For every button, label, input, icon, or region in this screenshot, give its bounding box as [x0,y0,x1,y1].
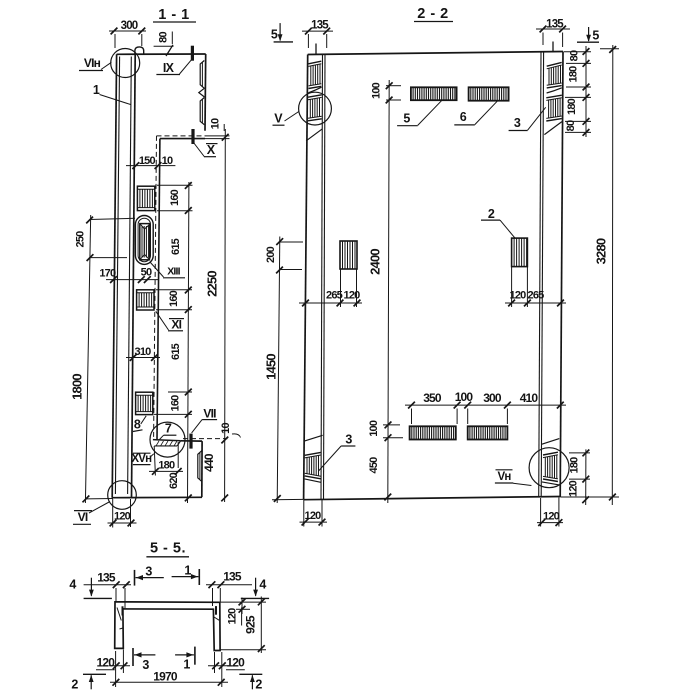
svg-text:2: 2 [255,678,262,692]
svg-text:250: 250 [74,231,86,248]
svg-text:6: 6 [460,110,467,124]
svg-text:120: 120 [568,480,580,497]
svg-text:180: 180 [158,459,175,471]
svg-text:3: 3 [345,433,352,447]
svg-text:300: 300 [121,20,138,32]
svg-text:VI: VI [78,510,88,524]
svg-text:4: 4 [69,578,76,592]
svg-text:1450: 1450 [263,354,278,380]
svg-text:180: 180 [567,66,579,83]
svg-text:300: 300 [483,391,502,405]
svg-text:7: 7 [165,421,172,435]
svg-text:120: 120 [543,511,560,523]
svg-text:615: 615 [170,238,182,255]
svg-text:1: 1 [93,83,100,97]
svg-text:440: 440 [202,453,216,472]
svg-text:200: 200 [265,246,277,263]
svg-text:5: 5 [271,28,278,42]
svg-text:180: 180 [568,457,580,474]
svg-text:100: 100 [371,82,383,99]
svg-text:XI: XI [171,317,181,331]
svg-text:120: 120 [114,511,131,523]
svg-text:8: 8 [134,418,141,432]
svg-text:80: 80 [569,50,581,61]
svg-text:Vн: Vн [497,471,511,483]
svg-text:VIн: VIн [84,56,101,70]
svg-text:925: 925 [244,615,258,634]
svg-text:120: 120 [226,608,238,625]
svg-text:150: 150 [139,155,156,167]
svg-text:410: 410 [520,391,539,405]
svg-text:450: 450 [368,457,380,474]
svg-text:2400: 2400 [367,249,382,275]
svg-text:120: 120 [96,656,115,670]
svg-text:4: 4 [259,578,266,592]
svg-text:350: 350 [423,391,442,405]
svg-text:310: 310 [135,346,152,358]
svg-text:2 - 2: 2 - 2 [417,6,449,22]
svg-text:3: 3 [514,116,521,130]
svg-text:VII: VII [203,407,216,421]
svg-text:180: 180 [566,98,578,115]
svg-text:2: 2 [488,207,495,221]
svg-text:10: 10 [220,423,232,434]
svg-text:120: 120 [344,290,361,302]
svg-text:1: 1 [183,658,190,672]
svg-text:135: 135 [311,20,329,32]
svg-text:2: 2 [71,678,78,692]
svg-text:100: 100 [368,420,380,437]
svg-text:2250: 2250 [205,271,220,297]
svg-text:620: 620 [168,472,180,489]
svg-text:IX: IX [163,61,175,75]
svg-text:80: 80 [157,32,169,43]
svg-text:3: 3 [142,658,149,672]
svg-text:135: 135 [97,571,116,585]
svg-text:3280: 3280 [594,238,609,264]
svg-text:120: 120 [226,656,245,670]
svg-text:160: 160 [169,189,181,206]
svg-text:10: 10 [162,155,173,167]
svg-text:80: 80 [565,120,577,131]
svg-text:1 - 1: 1 - 1 [158,7,190,23]
svg-text:5: 5 [592,29,599,43]
svg-text:5: 5 [403,112,410,126]
svg-text:135: 135 [223,570,242,584]
svg-text:1970: 1970 [153,670,178,684]
svg-text:3: 3 [145,565,152,579]
svg-text:615: 615 [170,343,182,360]
svg-text:170: 170 [99,268,116,280]
svg-text:5 - 5.: 5 - 5. [150,541,186,557]
svg-text:1800: 1800 [70,374,85,400]
svg-text:XIII: XIII [167,266,180,278]
svg-text:1: 1 [184,564,191,578]
svg-text:160: 160 [170,395,182,412]
svg-text:160: 160 [168,290,180,307]
svg-text:10: 10 [210,118,222,129]
svg-text:XVн: XVн [131,453,152,465]
